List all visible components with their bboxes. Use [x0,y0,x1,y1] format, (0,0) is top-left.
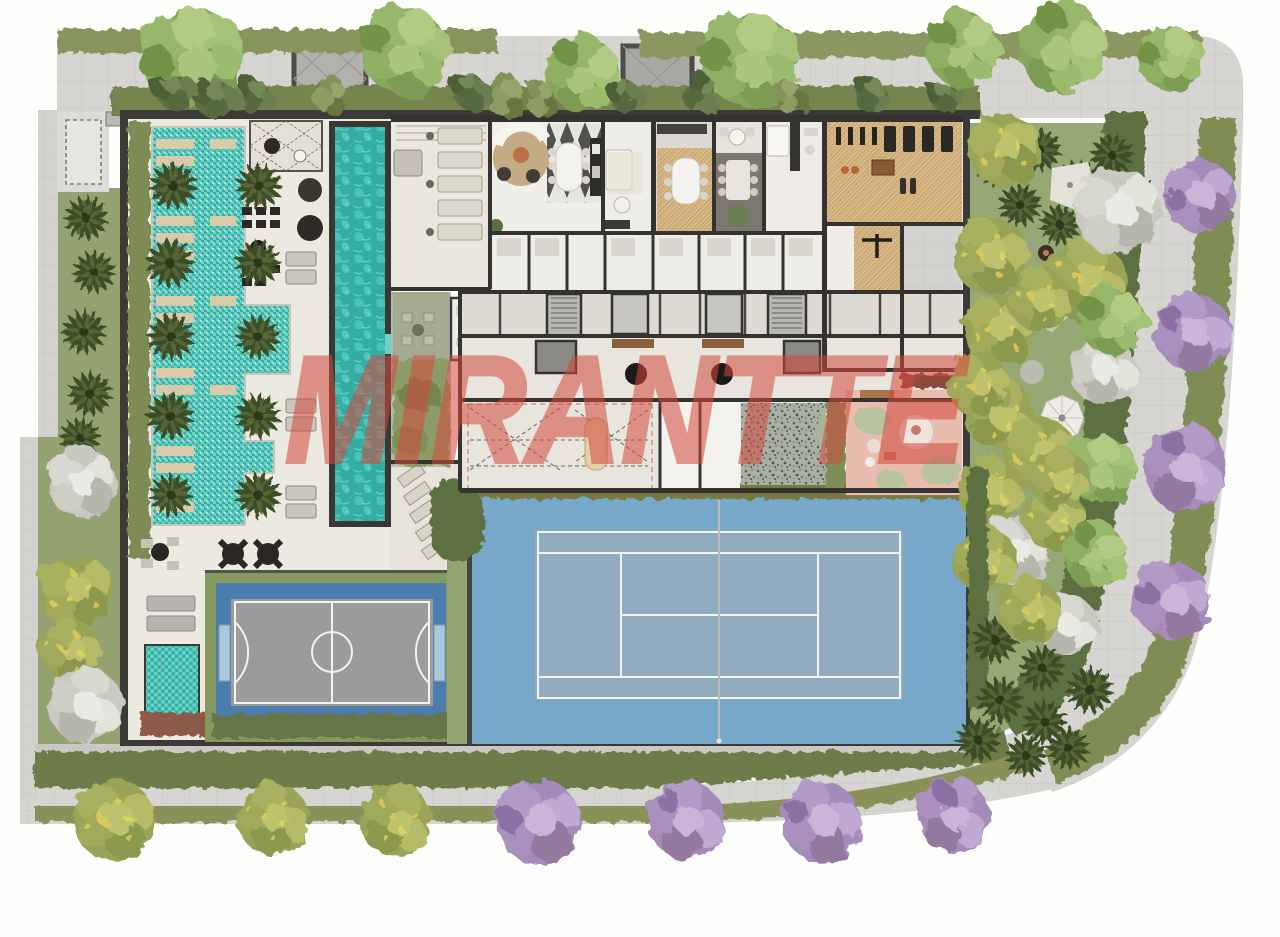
svg-text:MIRANTTE: MIRANTTE [285,325,969,495]
